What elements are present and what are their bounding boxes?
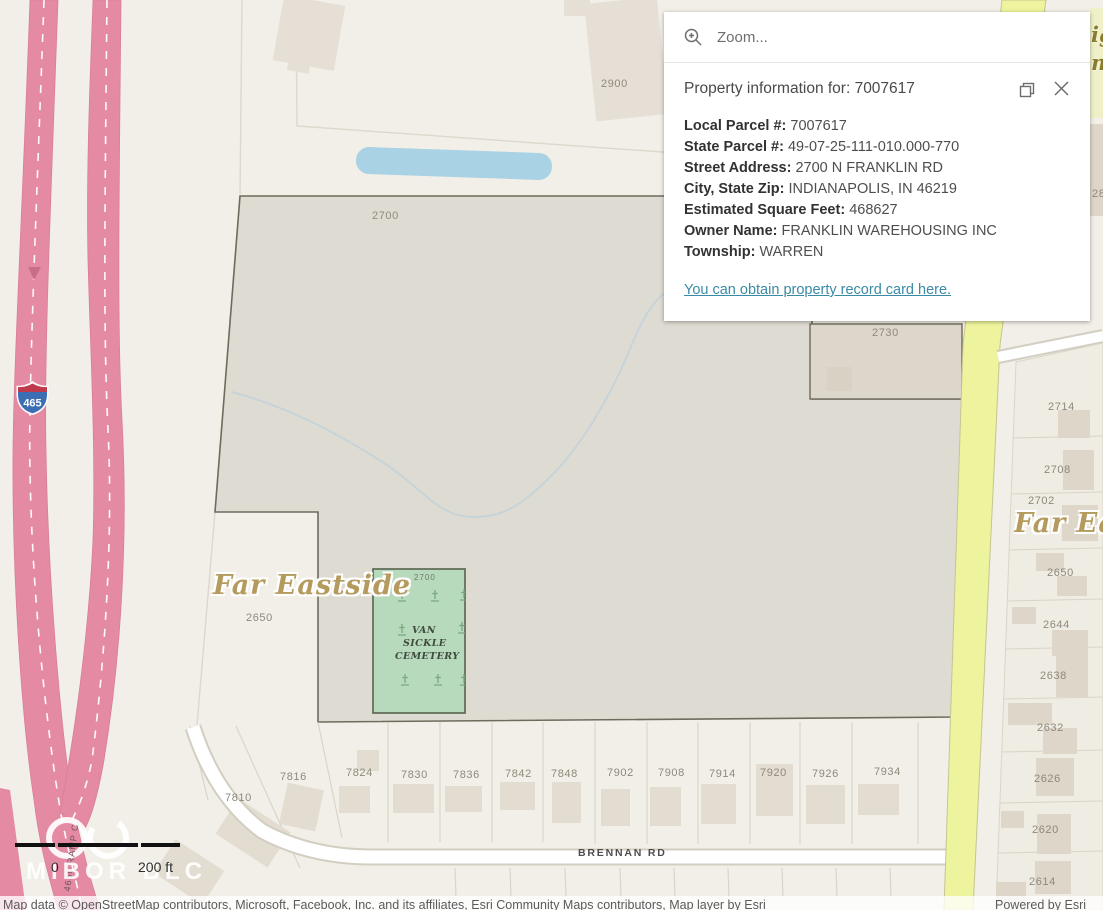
parcel-label: 7848 (551, 768, 578, 780)
field-township: Township: WARREN (684, 242, 1070, 263)
property-fields: Local Parcel #: 7007617 State Parcel #: … (684, 116, 1070, 263)
scalebar-segment (15, 843, 55, 847)
attribution-bar: Map data © OpenStreetMap contributors, M… (0, 896, 1103, 910)
cemetery-name-line: CEMETERY (395, 651, 459, 662)
parcel-label: 2650 (1047, 567, 1074, 579)
scalebar-segment (141, 843, 180, 847)
parcel-label: 2632 (1037, 722, 1064, 734)
parcel-label: 7842 (505, 768, 532, 780)
attribution-sources: Map data © OpenStreetMap contributors, M… (3, 898, 766, 910)
scalebar-segment (58, 843, 138, 847)
parcel-label: 7914 (709, 768, 736, 780)
parcel-label: 7908 (658, 767, 685, 779)
pond (356, 147, 553, 181)
search-input[interactable] (715, 28, 1076, 47)
parcel-label: 2650 (246, 612, 273, 624)
close-icon[interactable] (1053, 80, 1070, 97)
parcel-label: 7830 (401, 769, 428, 781)
place-label-partial: ig (1091, 22, 1103, 47)
field-street-address: Street Address: 2700 N FRANKLIN RD (684, 158, 1070, 179)
parcel-label: 7926 (812, 768, 839, 780)
parcel-label: 7816 (280, 771, 307, 783)
place-label-far-eastside: Far Eastside (213, 570, 411, 601)
parcel-label: 2708 (1044, 464, 1071, 476)
parcel-map-app: 465 (0, 0, 1103, 910)
parcel-label: 2626 (1034, 773, 1061, 785)
building-footprint (827, 367, 852, 391)
parcel-label: 7934 (874, 766, 901, 778)
field-estimated-sqft: Estimated Square Feet: 468627 (684, 200, 1070, 221)
attribution-powered-by: Powered by Esri (995, 898, 1086, 910)
copy-icon[interactable] (1017, 80, 1037, 100)
parcel-label: 2702 (1028, 495, 1055, 507)
parcel-label: 2638 (1040, 670, 1067, 682)
zoom-search-box[interactable] (664, 12, 1090, 63)
parcel-label: 2700 (372, 210, 399, 222)
place-label-far-eastside-clipped: Far Eastside (1014, 508, 1103, 550)
parcel-label: 2714 (1048, 401, 1075, 413)
cemetery-name-line: SICKLE (403, 638, 446, 649)
parcel-label: 7810 (225, 792, 252, 804)
parcel-label: 7920 (760, 767, 787, 779)
place-label-partial: m (1091, 50, 1103, 75)
popup-title: Property information for: 7007617 (684, 80, 1001, 98)
parcel-label: 2730 (872, 327, 899, 339)
property-popup: Property information for: 7007617 Local … (664, 63, 1090, 321)
parcel-label: 7902 (607, 767, 634, 779)
road-label-brennan: BRENNAN RD (578, 847, 667, 859)
parcel-label: 7824 (346, 767, 373, 779)
zoom-in-magnifier-icon (684, 28, 702, 46)
building-footprints-north (273, 0, 669, 121)
parcel-label: 2644 (1043, 619, 1070, 631)
svg-text:465: 465 (23, 398, 41, 410)
cemetery-name-line: VAN (412, 625, 436, 636)
scalebar-end-label: 200 ft (138, 859, 173, 875)
parcel-label: 2900 (601, 78, 628, 90)
property-record-card-link[interactable]: You can obtain property record card here… (684, 282, 951, 298)
parcel-label: 7836 (453, 769, 480, 781)
parcel-label: 2620 (1032, 824, 1059, 836)
highway-i465 (0, 0, 124, 910)
cemetery-parcel-number: 2700 (414, 573, 436, 582)
field-city-state-zip: City, State Zip: INDIANAPOLIS, IN 46219 (684, 179, 1070, 200)
field-state-parcel: State Parcel #: 49-07-25-111-010.000-770 (684, 137, 1070, 158)
parcel-label-partial: 28 (1092, 188, 1103, 200)
field-owner-name: Owner Name: FRANKLIN WAREHOUSING INC (684, 221, 1070, 242)
scalebar-start-label: 0 (51, 859, 59, 875)
parcel-label: 2614 (1029, 876, 1056, 888)
field-local-parcel: Local Parcel #: 7007617 (684, 116, 1070, 137)
info-panel: Property information for: 7007617 Local … (664, 12, 1090, 321)
